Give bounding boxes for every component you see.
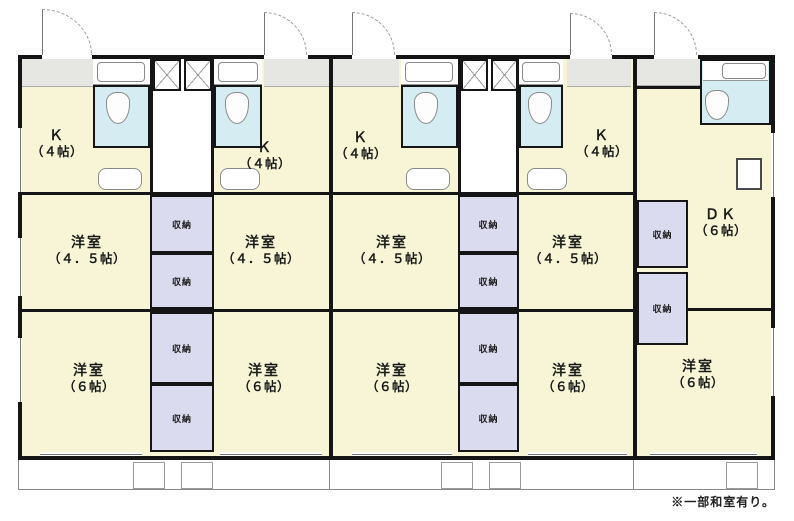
washing-machine-pad-icon: [441, 462, 473, 489]
bathtub-icon: [97, 62, 145, 82]
window: [220, 452, 322, 456]
unit1-kitchen-label: Ｋ （４帖）: [12, 126, 102, 160]
bathtub-icon: [405, 62, 453, 82]
duct-shaft-icon: [153, 59, 181, 91]
genkan: [637, 59, 700, 86]
bathtub-icon: [722, 63, 766, 79]
wall: [688, 308, 771, 311]
closet-label: 収納: [172, 275, 192, 288]
window: [18, 238, 22, 296]
window: [18, 338, 22, 402]
unit4-western-room-6-label: 洋室 （６帖）: [513, 361, 623, 395]
kitchen-sink-icon: [527, 168, 567, 190]
closet-label: 収納: [478, 218, 498, 231]
door-opening: [264, 55, 308, 59]
closet: 収納: [458, 195, 519, 253]
door-swing-icon: [570, 13, 612, 55]
closet-label: 収納: [478, 412, 498, 425]
door-swing-icon: [42, 9, 92, 55]
washing-machine-pad-icon: [181, 462, 213, 489]
closet: 収納: [150, 195, 214, 253]
closet: 収納: [150, 253, 214, 309]
closet-label: 収納: [652, 302, 672, 315]
wall: [637, 86, 703, 89]
unit3-western-room-6-label: 洋室 （６帖）: [337, 361, 447, 395]
window: [352, 452, 452, 456]
duct-shaft-icon: [184, 59, 212, 91]
balcony-divider: [633, 460, 634, 490]
bathtub-icon: [218, 62, 258, 82]
unit3-western-room-45-label: 洋室 （４．５帖）: [337, 233, 447, 267]
genkan: [567, 59, 631, 87]
refrigerator-icon: [736, 158, 762, 190]
closet-label: 収納: [172, 218, 192, 231]
closet: 収納: [458, 384, 519, 452]
closet: 収納: [150, 312, 214, 384]
unit2-western-room-6-label: 洋室 （６帖）: [209, 361, 319, 395]
unit5-western-room-6-label: 洋室 （６帖）: [643, 357, 753, 391]
kitchen-sink-icon: [98, 168, 142, 190]
unit2-kitchen-label: Ｋ （４帖）: [220, 138, 310, 172]
closet-label: 収納: [478, 275, 498, 288]
genkan: [22, 59, 93, 87]
wall: [22, 192, 633, 195]
floorplan-canvas: 収納 収納 収納 収納 収納 収納 収納 収納 収納 収納 Ｋ （４帖） Ｋ （…: [0, 0, 794, 521]
duct-shaft-icon: [491, 59, 518, 91]
door-opening: [654, 55, 698, 59]
window: [18, 128, 22, 192]
kitchen-sink-icon: [406, 168, 450, 190]
closet: 収納: [150, 384, 214, 452]
door-swing-icon: [654, 12, 697, 55]
closet: 収納: [458, 312, 519, 384]
closet: 収納: [637, 272, 688, 345]
unit3-kitchen-label: Ｋ （４帖）: [316, 128, 406, 162]
unit4-kitchen-label: Ｋ （４帖）: [557, 126, 647, 160]
unit5-dk-label: ＤＫ （６帖）: [666, 205, 776, 239]
unit1-western-room-6-label: 洋室 （６帖）: [34, 361, 144, 395]
door-swing-icon: [352, 12, 395, 55]
bathtub-icon: [522, 62, 560, 82]
footnote: ※一部和室有り。: [600, 493, 775, 510]
door-swing-icon: [264, 12, 307, 55]
washing-machine-pad-icon: [489, 462, 521, 489]
window: [40, 452, 142, 456]
genkan: [264, 59, 329, 87]
door-opening: [352, 55, 396, 59]
duct-shaft-icon: [461, 59, 488, 91]
wall: [22, 309, 633, 312]
closet-label: 収納: [478, 342, 498, 355]
unit1-western-room-45-label: 洋室 （４．５帖）: [32, 233, 142, 267]
balcony-divider: [329, 460, 330, 490]
window: [528, 452, 627, 456]
washing-machine-pad-icon: [133, 462, 165, 489]
party-wall: [329, 55, 333, 460]
window: [771, 133, 775, 197]
unit2-western-room-45-label: 洋室 （４．５帖）: [206, 233, 316, 267]
balcony: [18, 460, 775, 490]
closet-label: 収納: [172, 412, 192, 425]
window: [650, 452, 757, 456]
unit4-western-room-45-label: 洋室 （４．５帖）: [513, 233, 623, 267]
door-opening: [570, 55, 612, 59]
door-opening: [42, 55, 92, 59]
closet: 収納: [458, 253, 519, 309]
genkan: [333, 59, 399, 87]
window: [771, 328, 775, 396]
washing-machine-pad-icon: [726, 462, 758, 489]
closet-label: 収納: [172, 342, 192, 355]
